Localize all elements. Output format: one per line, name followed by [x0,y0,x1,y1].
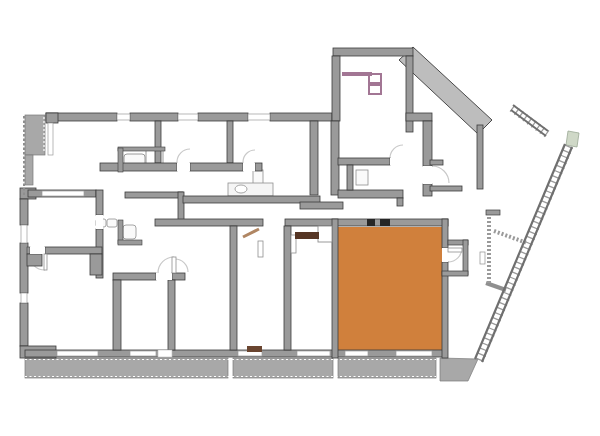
door-leaf-4 [44,254,47,270]
living-top-wall-a [27,247,30,254]
terrace-door [158,350,172,357]
wc-toilet [123,225,136,239]
projection-int-stub [397,198,403,206]
tan-door-leaf [243,229,259,237]
corridor-wall-b [190,163,243,171]
orange-right-wall-b [442,262,448,358]
door-white-1 [177,163,190,171]
bottom-divider-4 [284,226,291,350]
wc-wall-h [118,240,142,245]
door-white-4 [30,247,45,254]
hall-wall-b [172,273,185,280]
projection-left-wall [332,56,340,121]
terrace-slab-3 [338,358,436,378]
diagonal-wall-ticks [479,146,569,361]
window-left-1 [21,225,27,243]
west-vert-wall-a [96,190,103,215]
pink-counter-bar [342,72,372,76]
wall-block-b [90,254,102,275]
floor-plan-stage [0,0,600,436]
terrace-slab-4 [440,358,478,381]
door-white-6 [96,215,103,229]
window-room-top [42,191,84,196]
diagonal-wall-inner [475,144,565,359]
door-arc-kitchen-1 [177,149,190,162]
orange-left-wall [332,219,338,358]
window-bottom-5 [345,351,368,356]
hall-wall-a [113,273,156,280]
bath-wall-v [118,148,123,172]
top-wall-c [198,113,248,121]
pink-unit [369,74,381,94]
door-white-8 [442,248,448,262]
hatch-partition-d [494,231,527,243]
brown-block [247,346,262,352]
living-top-wall-b [45,247,102,254]
kitchen-sink [235,185,247,193]
wall-stub-a [430,160,443,165]
projection-int-wall-1 [338,158,390,165]
window-top-3 [248,114,270,120]
top-wall-d [270,113,332,121]
door-white-3 [390,158,404,165]
railing-2-b [513,105,548,131]
wedge-stub-wall [486,210,500,215]
kitchen-wall [183,196,320,203]
orange-right-wall-a [442,219,448,248]
window-top-1 [117,114,130,120]
bath-wall-h [118,147,165,151]
door-arc-hall-2 [175,259,188,272]
closet-bottom-wall [442,271,468,276]
wedge-door [480,252,485,264]
corridor-wall-c [255,163,262,171]
railing-2-a [511,110,546,136]
green-box [566,131,579,147]
wall-stub-b [430,186,462,191]
railing-2-ticks [512,108,547,134]
south-wall-b [285,219,448,226]
wall-tick-1 [367,219,375,226]
wall-tick-2 [380,219,390,226]
projection-int-wall-2 [338,190,403,198]
pilaster [27,254,42,266]
door-leaf-1 [258,241,263,257]
window-bottom-4 [297,351,330,356]
corridor-wall-a [100,163,177,171]
step-right-wall [406,113,432,121]
duct-left-wall [310,121,318,195]
projection-top-wall [333,48,413,56]
upper-divider-1 [155,121,161,163]
door-white-7 [423,166,432,184]
south-wall-a [155,219,263,226]
window-left-2 [21,293,27,303]
wall-left-1 [20,199,28,225]
wedge-vert-wall [477,125,483,189]
corner-top-left [46,113,58,123]
wall-left-3 [20,303,28,346]
balcony-slab-tail [25,155,33,185]
door-white-5 [156,273,172,280]
brown-bar [295,232,319,239]
upper-divider-2 [227,121,233,163]
door-white-2 [243,163,255,171]
door-arc-right-wall [432,166,449,183]
window-bottom-6 [396,351,432,356]
bottom-divider-2 [168,280,175,350]
closet-right-wall [463,240,468,275]
projection-int-vert [347,165,353,190]
wedge-wall-bottom [486,283,506,290]
window-bottom-2 [130,351,156,356]
door-leaf-3 [448,248,462,252]
door-arc-projection [390,145,403,158]
right-wall-upper [423,121,432,166]
corridor-wall-mid [300,202,343,209]
diagonal-wall-outer [482,147,572,362]
window-top-2 [178,114,198,120]
highlighted-room[interactable] [338,227,442,352]
bottom-divider-3 [230,226,237,350]
door-arc-kitchen-2 [243,150,255,162]
kitchen-wall-west [125,192,183,198]
wc-basin-2 [107,219,117,227]
terrace-slab-2 [233,358,333,378]
bottom-divider-1 [113,280,121,350]
shaft-box [318,226,332,242]
terrace-slab-1 [25,358,228,378]
window-upper-left [48,123,53,155]
bath2-fixture [356,170,368,185]
balcony-slab-left [25,115,45,155]
door-leaf-5 [172,257,176,273]
floor-plan-svg [0,0,600,436]
top-wall-b [130,113,178,121]
window-bottom-1 [57,351,98,356]
